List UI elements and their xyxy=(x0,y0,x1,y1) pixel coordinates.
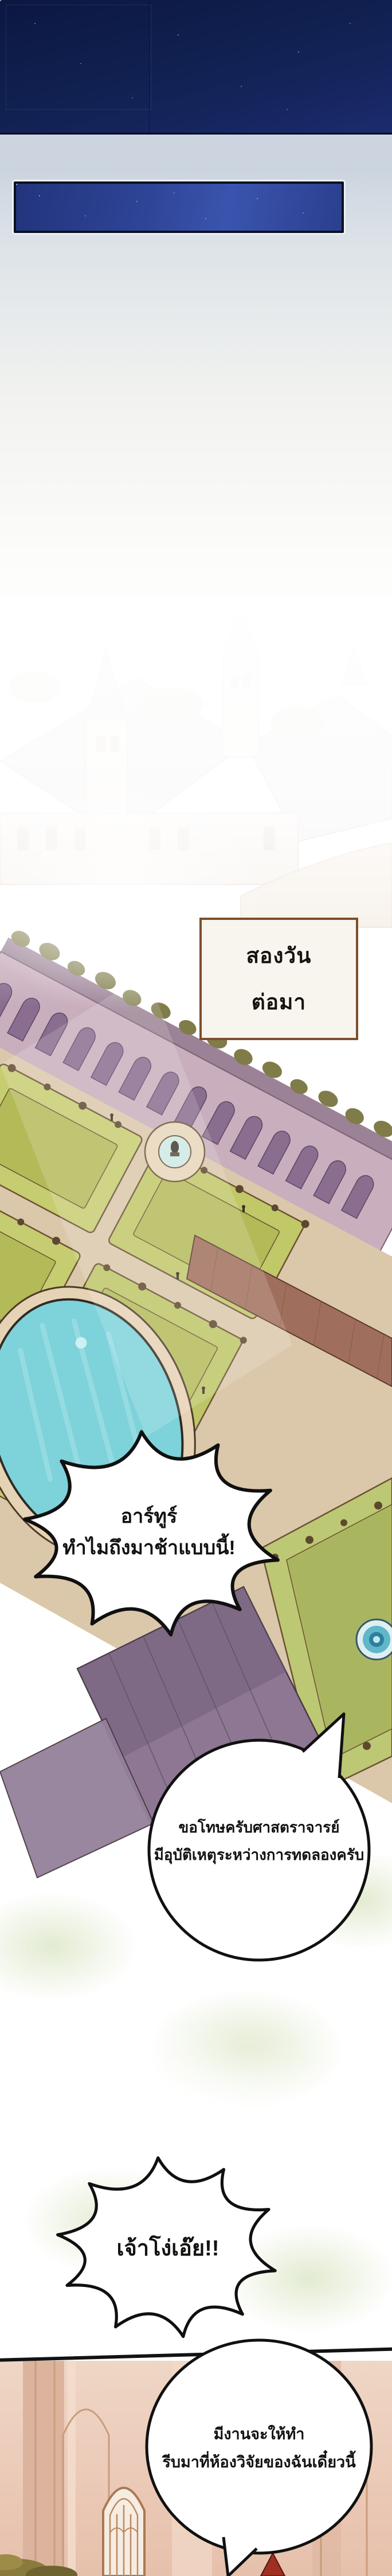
night-panel-inner-frame xyxy=(6,5,151,110)
webtoon-page: สองวัน ต่อมา อาร์ทูร์ ทำไมถึงมาช้าแบบนี้… xyxy=(0,0,392,2576)
caption-line-2: ต่อมา xyxy=(252,985,306,1019)
time-skip-caption: สองวัน ต่อมา xyxy=(199,918,358,1040)
night-sky-inset-panel xyxy=(14,181,344,233)
bubble-text-arthur: อาร์ทูร์ ทำไมถึงมาช้าแบบนี้! xyxy=(32,1501,266,1564)
bubble-text-apology: ขอโทษครับศาสตราจารย์ มีอุบัติเหตุระหว่าง… xyxy=(144,1814,374,1868)
bubble-apology-line2: มีอุบัติเหตุระหว่างการทดลองครับ xyxy=(144,1841,374,1868)
night-sky-panel xyxy=(0,0,392,135)
bubble-text-idiot: เจ้าโง่เอ๊ย!! xyxy=(65,2234,271,2264)
stars-decoration xyxy=(16,184,17,185)
caption-line-1: สองวัน xyxy=(246,939,312,973)
night-panel-divider xyxy=(149,0,150,133)
bubble-text-task: มีงานจะให้ทำ รีบมาที่ห้องวิจัยของฉันเดี๋… xyxy=(144,2420,374,2476)
stars-decoration xyxy=(0,0,1,1)
bubble-arthur-line2: ทำไมถึงมาช้าแบบนี้! xyxy=(32,1532,266,1564)
bubble-task-line2: รีบมาที่ห้องวิจัยของฉันเดี๋ยวนี้ xyxy=(144,2448,374,2476)
bubble-task-line1: มีงานจะให้ทำ xyxy=(144,2420,374,2448)
bubble-apology-line1: ขอโทษครับศาสตราจารย์ xyxy=(144,1814,374,1841)
bubble-idiot-line1: เจ้าโง่เอ๊ย!! xyxy=(65,2234,271,2264)
gothic-window xyxy=(103,2488,144,2576)
bubble-arthur-line1: อาร์ทูร์ xyxy=(32,1501,266,1532)
